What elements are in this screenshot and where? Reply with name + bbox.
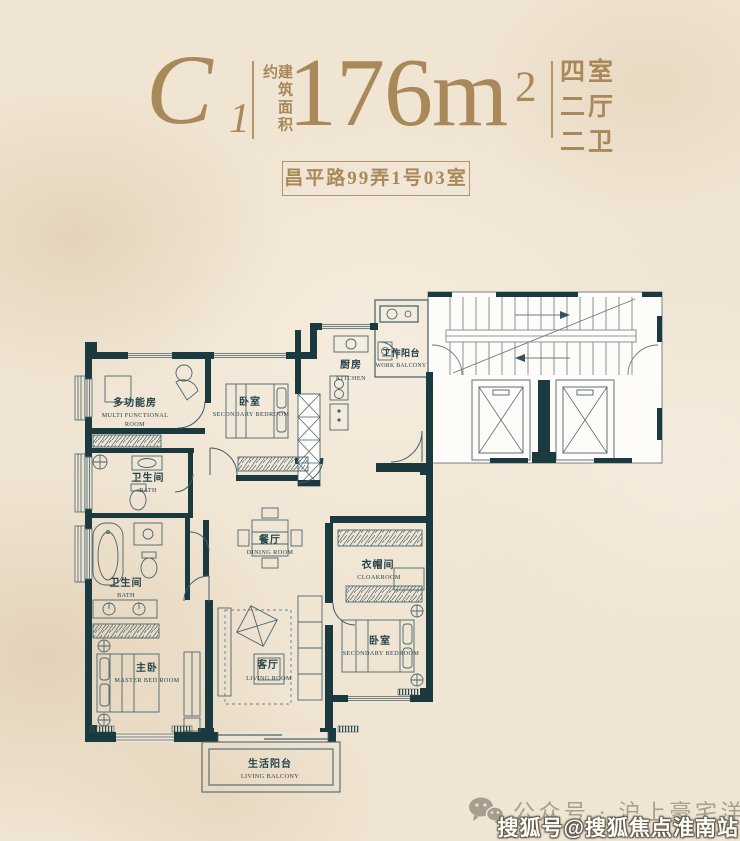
area-value: 176m [288, 44, 507, 142]
floorplan-page: C 1 建筑面积约 176m 2 四室 二厅 二卫 昌平路99弄1号03室 [0, 0, 740, 841]
bed-master [97, 640, 200, 731]
label-cloakroom: 衣帽间 CLOAKROOM [357, 558, 401, 581]
room-label-en: CLOAKROOM [357, 574, 401, 581]
room-label-cn: 客厅 [256, 658, 279, 671]
room-label-cn: 主卧 [136, 661, 158, 674]
living-furniture [218, 596, 322, 704]
room-config-halls: 二厅 [560, 90, 616, 125]
room-label-en: SECONDARY BEDROOM [213, 411, 290, 418]
room-label-en: LIVING BALCONY [241, 773, 299, 780]
floorplan-drawing: 多功能房 MULTI FUNCTIONAL ROOM 卧室 SECONDARY … [60, 280, 680, 800]
room-label-cn: 卫生间 [132, 471, 165, 484]
room-label-en: BATH [117, 592, 135, 599]
room-label-cn: 餐厅 [258, 533, 281, 546]
label-master-bedroom: 主卧 MASTER BED ROOM [114, 661, 179, 684]
room-label-en: LIVING ROOM [246, 675, 292, 682]
room-label-cn: 卧室 [239, 395, 261, 408]
room-label-cn: 生活阳台 [248, 757, 292, 770]
label-work-balcony: 工作阳台 WORK BALCONY [376, 347, 427, 369]
room-label-en: DINING ROOM [247, 549, 294, 556]
room-label-en: SECONDARY BEDROOM [343, 650, 420, 657]
label-secondary-bedroom-bottom: 卧室 SECONDARY BEDROOM [343, 634, 420, 657]
closet-hatch-3 [93, 624, 159, 638]
label-secondary-bedroom-top: 卧室 SECONDARY BEDROOM [213, 395, 290, 418]
room-label-cn: 衣帽间 [362, 558, 395, 571]
label-bath-2: 卫生间 BATH [110, 576, 143, 599]
multi-room-furniture [105, 365, 198, 402]
sohu-watermark: 搜狐号@搜狐焦点淮南站 [498, 812, 739, 841]
window-bedroom-top [214, 352, 286, 359]
window-top-left [128, 352, 172, 359]
room-label-cn: 卫生间 [110, 576, 143, 589]
unit-letter: C [146, 40, 213, 140]
header-divider-left [252, 61, 254, 139]
room-label-cn: 多功能房 [113, 396, 157, 409]
header-divider-right [551, 61, 553, 138]
bath2-fixtures [93, 523, 162, 618]
label-dining-room: 餐厅 DINING ROOM [247, 533, 294, 556]
balcony-sliding-door [218, 732, 328, 742]
room-label-en: WORK BALCONY [376, 363, 427, 369]
room-labels: 多功能房 MULTI FUNCTIONAL ROOM 卧室 SECONDARY … [102, 347, 427, 780]
label-kitchen: 厨房 KITCHEN [336, 358, 366, 382]
room-label-en: MULTI FUNCTIONAL [102, 412, 169, 419]
area-label: 建筑面积约 [261, 64, 291, 148]
room-config: 四室 二厅 二卫 [560, 55, 616, 160]
address-badge: 昌平路99弄1号03室 [282, 161, 470, 196]
room-label-en2: ROOM [125, 421, 145, 428]
label-living-balcony: 生活阳台 LIVING BALCONY [241, 757, 299, 780]
room-label-cn: 工作阳台 [382, 347, 420, 358]
label-living-room: 客厅 LIVING ROOM [246, 658, 292, 682]
entry-door [391, 431, 422, 462]
room-label-en: KITCHEN [336, 375, 366, 382]
kitchen-fixtures [330, 336, 368, 430]
bay-window-left-1 [75, 376, 92, 420]
room-label-cn: 厨房 [340, 358, 362, 371]
closet-hatch-1 [93, 435, 161, 447]
area-superscript: 2 [515, 66, 537, 109]
stair-elevator-block [428, 292, 662, 463]
window-bedroom-bottom [348, 695, 410, 702]
label-multi-functional-room: 多功能房 MULTI FUNCTIONAL ROOM [102, 396, 169, 428]
room-config-bedrooms: 四室 [560, 55, 616, 90]
bay-window-left-3 [75, 526, 92, 582]
bay-window-left-2 [75, 454, 92, 512]
room-label-en: MASTER BED ROOM [114, 677, 179, 684]
room-label-en: BATH [139, 487, 157, 494]
unit-number: 1 [229, 98, 250, 140]
window-master-bottom [116, 732, 174, 742]
room-config-baths: 二卫 [560, 125, 616, 160]
closet-hatch-2 [238, 457, 308, 471]
window-kitchen [322, 323, 370, 330]
room-label-cn: 卧室 [369, 634, 391, 647]
duct-shaft [298, 394, 320, 486]
